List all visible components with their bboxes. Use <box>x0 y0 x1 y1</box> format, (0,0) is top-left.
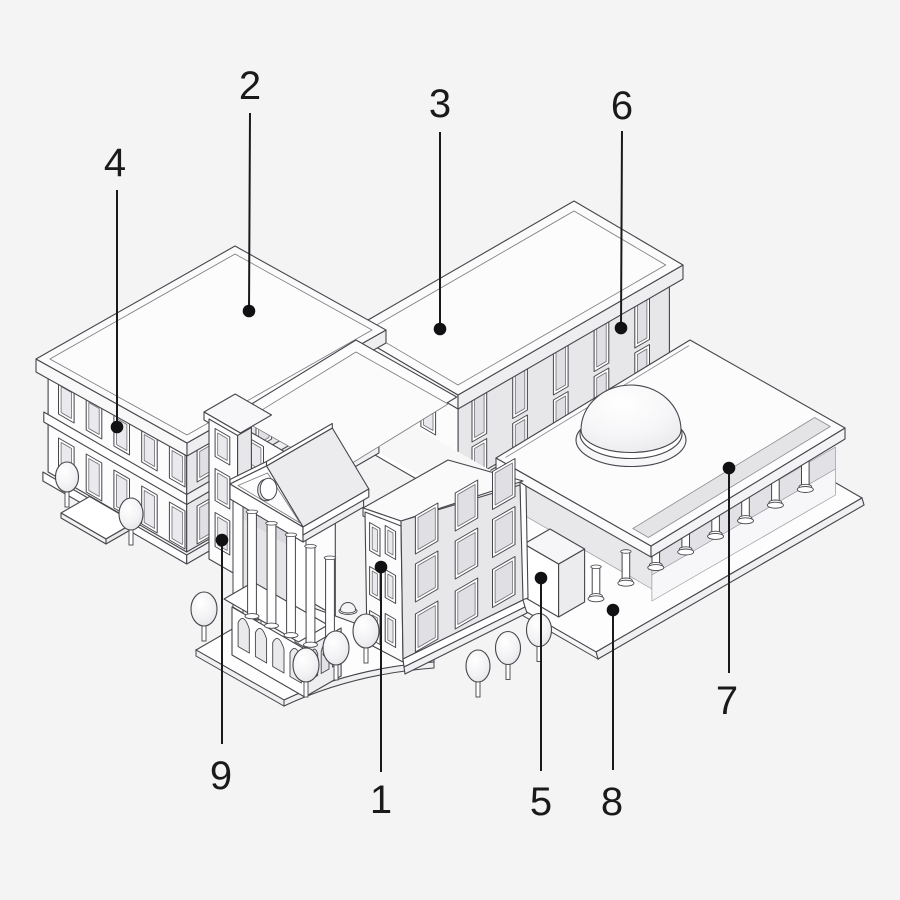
svg-text:4: 4 <box>104 141 126 185</box>
svg-text:2: 2 <box>239 64 261 108</box>
svg-text:8: 8 <box>601 780 623 824</box>
svg-text:9: 9 <box>210 754 232 798</box>
svg-text:7: 7 <box>716 679 738 723</box>
svg-text:5: 5 <box>530 780 552 824</box>
svg-text:1: 1 <box>370 778 392 822</box>
svg-text:3: 3 <box>429 82 451 126</box>
svg-text:6: 6 <box>611 84 633 128</box>
